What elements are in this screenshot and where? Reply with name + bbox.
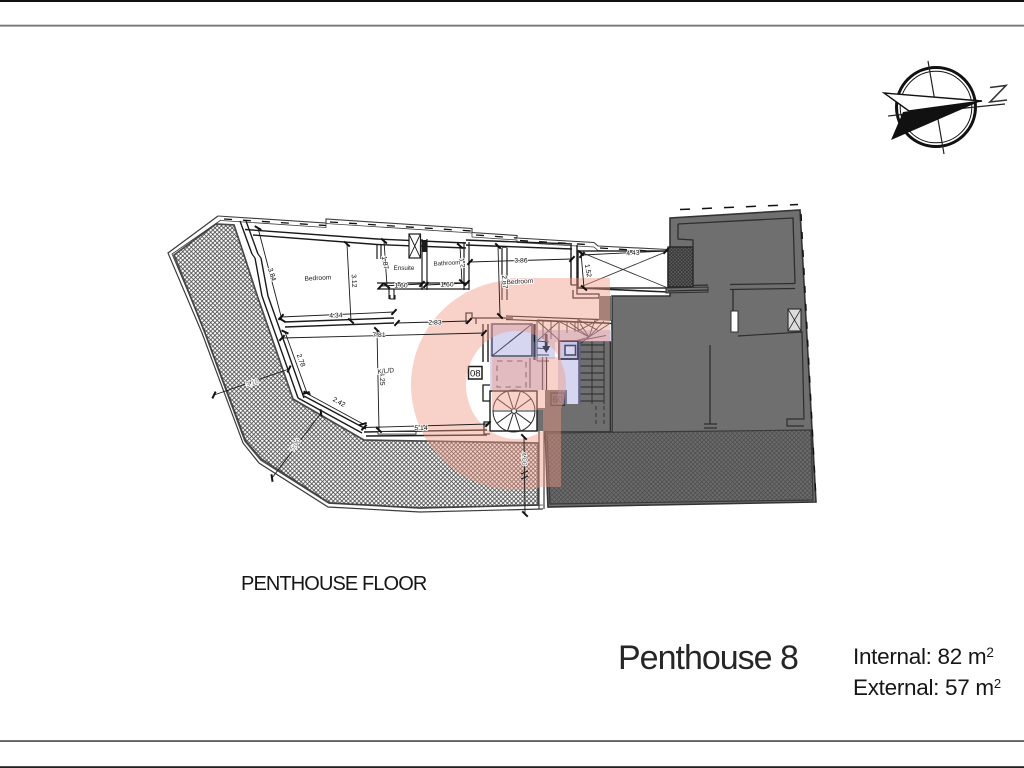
svg-text:3.84: 3.84: [266, 267, 277, 282]
svg-text:08: 08: [470, 368, 481, 379]
svg-text:4.00: 4.00: [520, 452, 528, 466]
svg-text:7.81: 7.81: [372, 332, 385, 339]
svg-text:3.86: 3.86: [514, 258, 527, 265]
svg-text:Ensuite: Ensuite: [394, 265, 415, 272]
svg-text:4.34: 4.34: [329, 312, 343, 319]
svg-text:2.78: 2.78: [295, 353, 306, 368]
svg-text:K/L/D: K/L/D: [377, 367, 394, 376]
svg-text:4.43: 4.43: [626, 250, 640, 258]
svg-text:1.87: 1.87: [380, 256, 389, 270]
svg-text:Bathroom: Bathroom: [433, 259, 460, 267]
svg-text:3.12: 3.12: [350, 274, 358, 288]
svg-text:1.60: 1.60: [394, 283, 407, 290]
svg-text:2.42: 2.42: [331, 396, 346, 409]
svg-text:Bedroom: Bedroom: [304, 274, 332, 282]
svg-text:1.60: 1.60: [440, 282, 453, 289]
svg-text:Bedroom: Bedroom: [506, 278, 534, 286]
svg-text:5.14: 5.14: [414, 425, 427, 432]
svg-text:2.83: 2.83: [428, 320, 441, 327]
